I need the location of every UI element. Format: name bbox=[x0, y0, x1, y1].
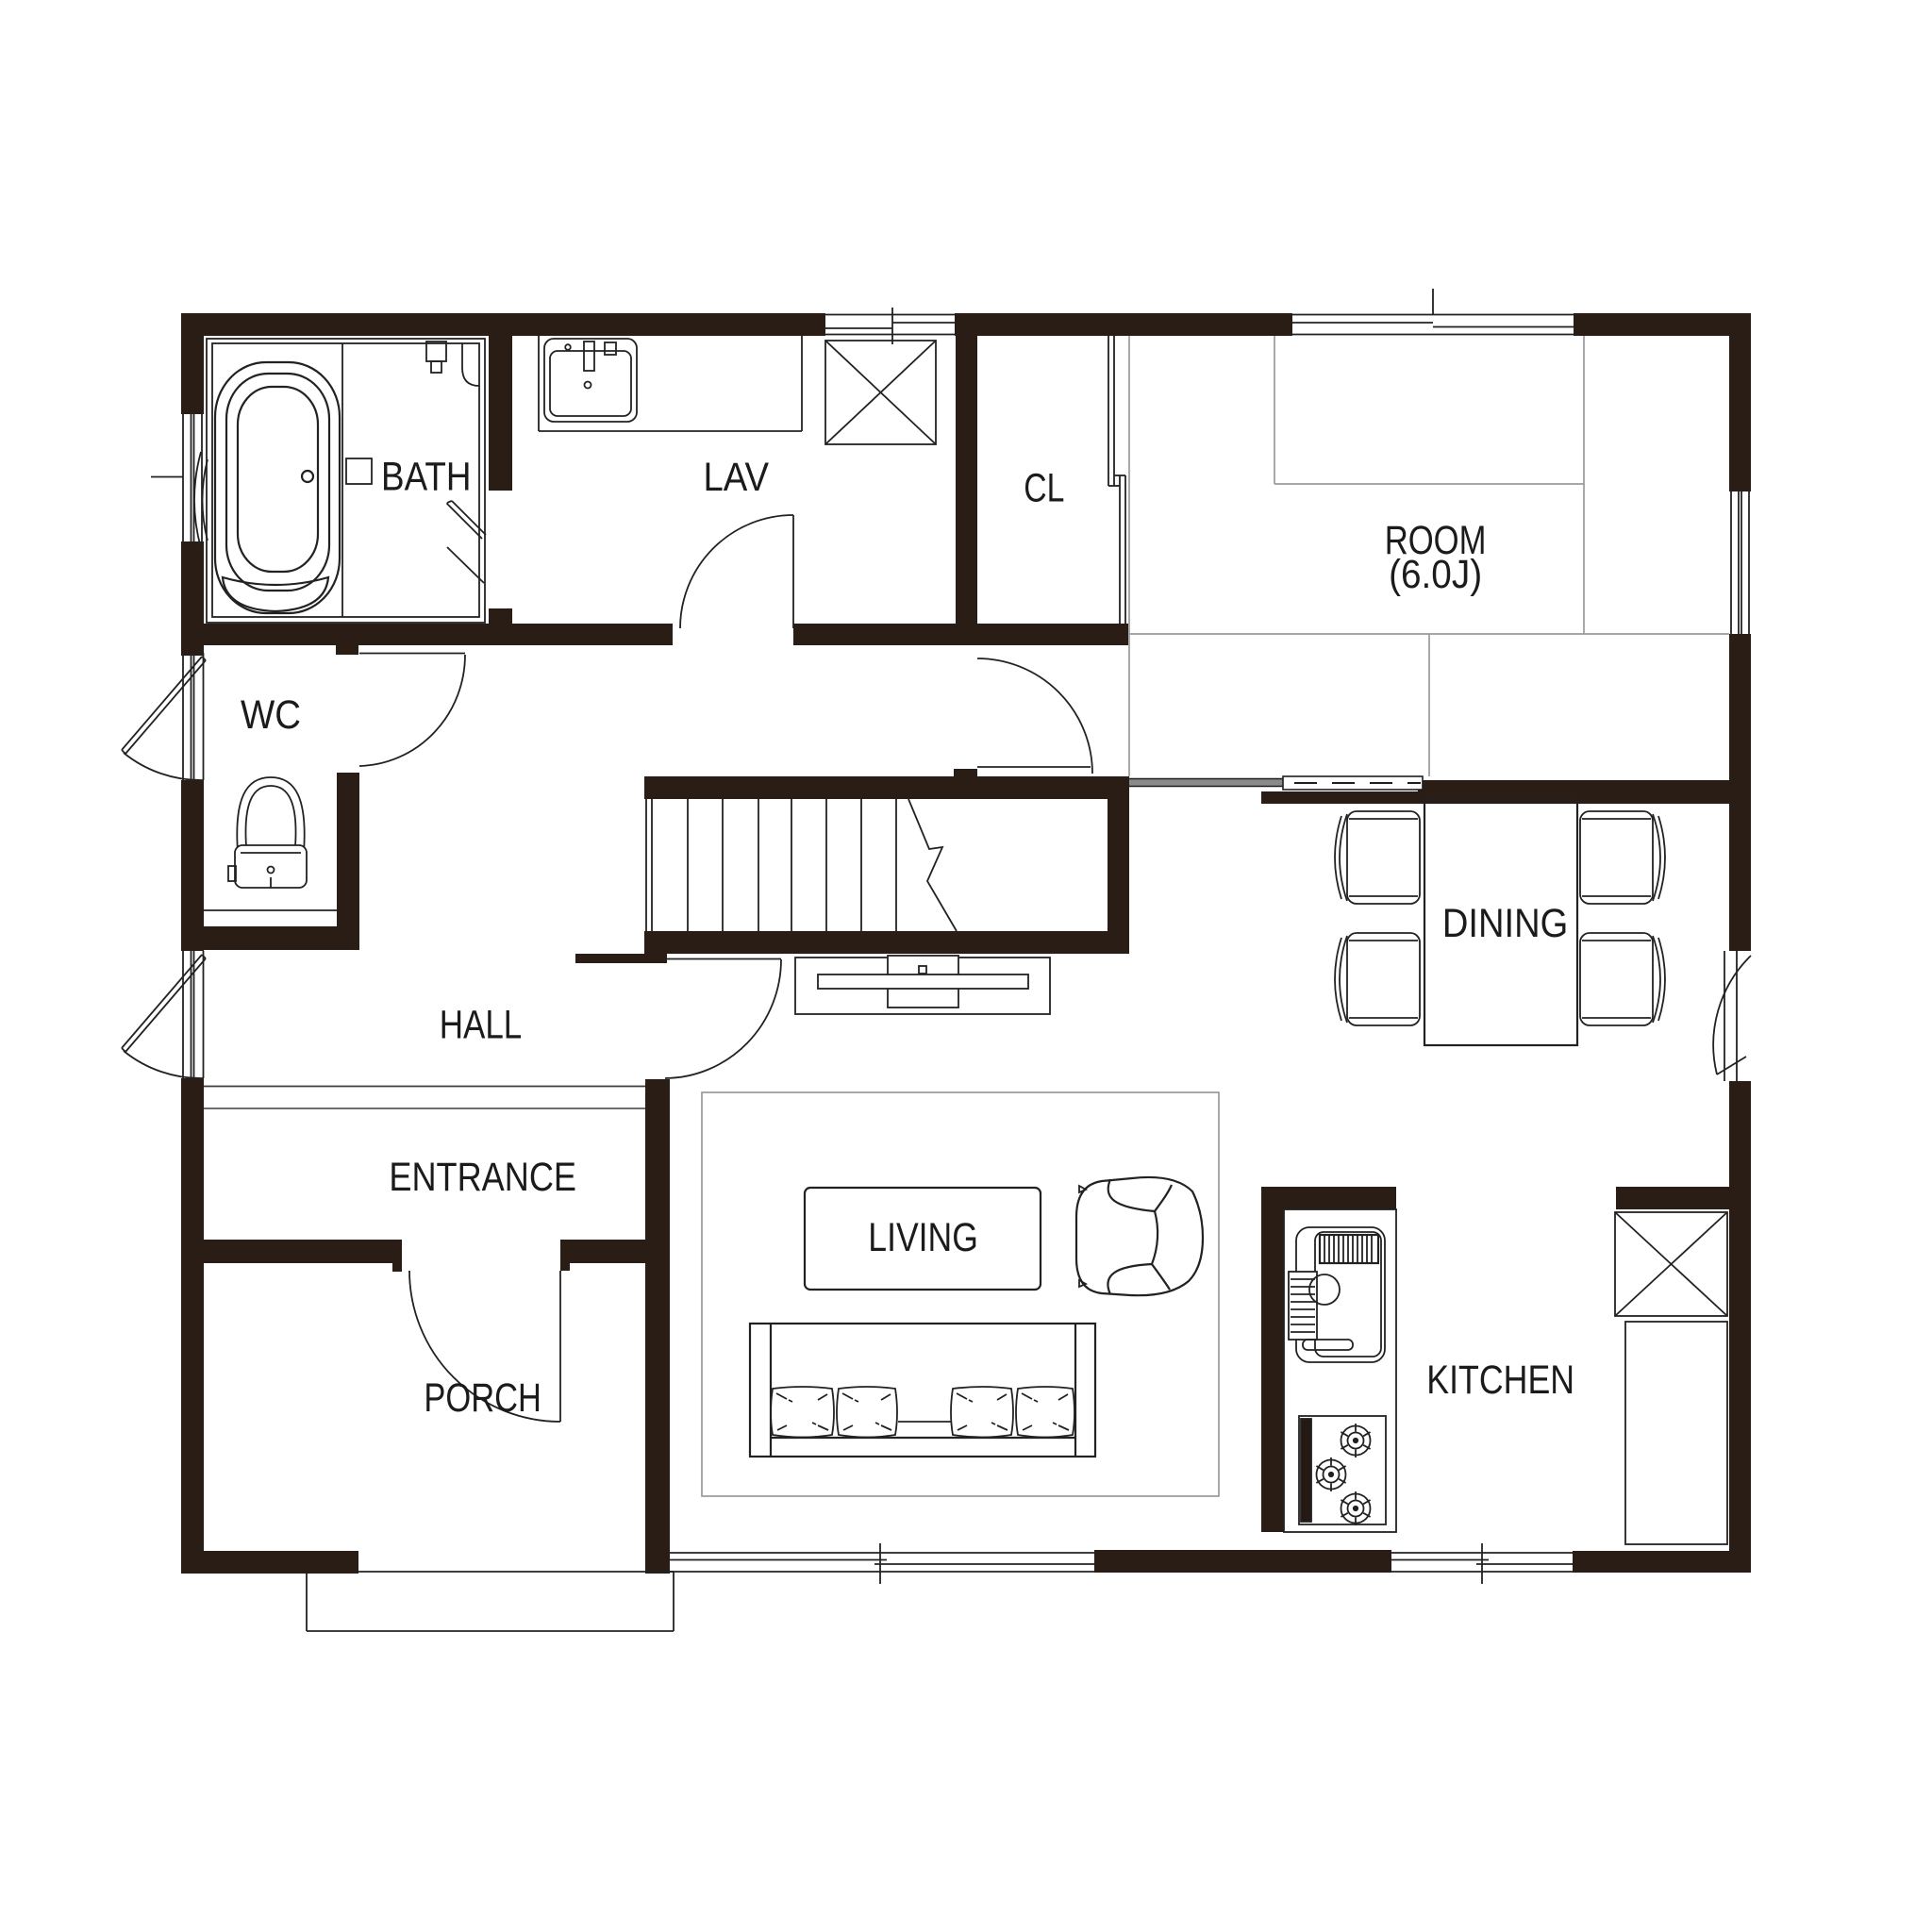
svg-text:(6.0J): (6.0J) bbox=[1389, 552, 1482, 597]
svg-text:WC: WC bbox=[241, 692, 301, 738]
svg-text:HALL: HALL bbox=[440, 1003, 523, 1048]
svg-text:BATH: BATH bbox=[381, 455, 472, 500]
svg-text:LIVING: LIVING bbox=[868, 1215, 978, 1260]
svg-text:CL: CL bbox=[1024, 465, 1064, 510]
svg-text:KITCHEN: KITCHEN bbox=[1426, 1357, 1574, 1403]
svg-text:DINING: DINING bbox=[1442, 901, 1568, 946]
svg-text:LAV: LAV bbox=[704, 455, 770, 500]
svg-text:PORCH: PORCH bbox=[424, 1375, 541, 1421]
svg-text:ENTRANCE: ENTRANCE bbox=[389, 1155, 576, 1200]
